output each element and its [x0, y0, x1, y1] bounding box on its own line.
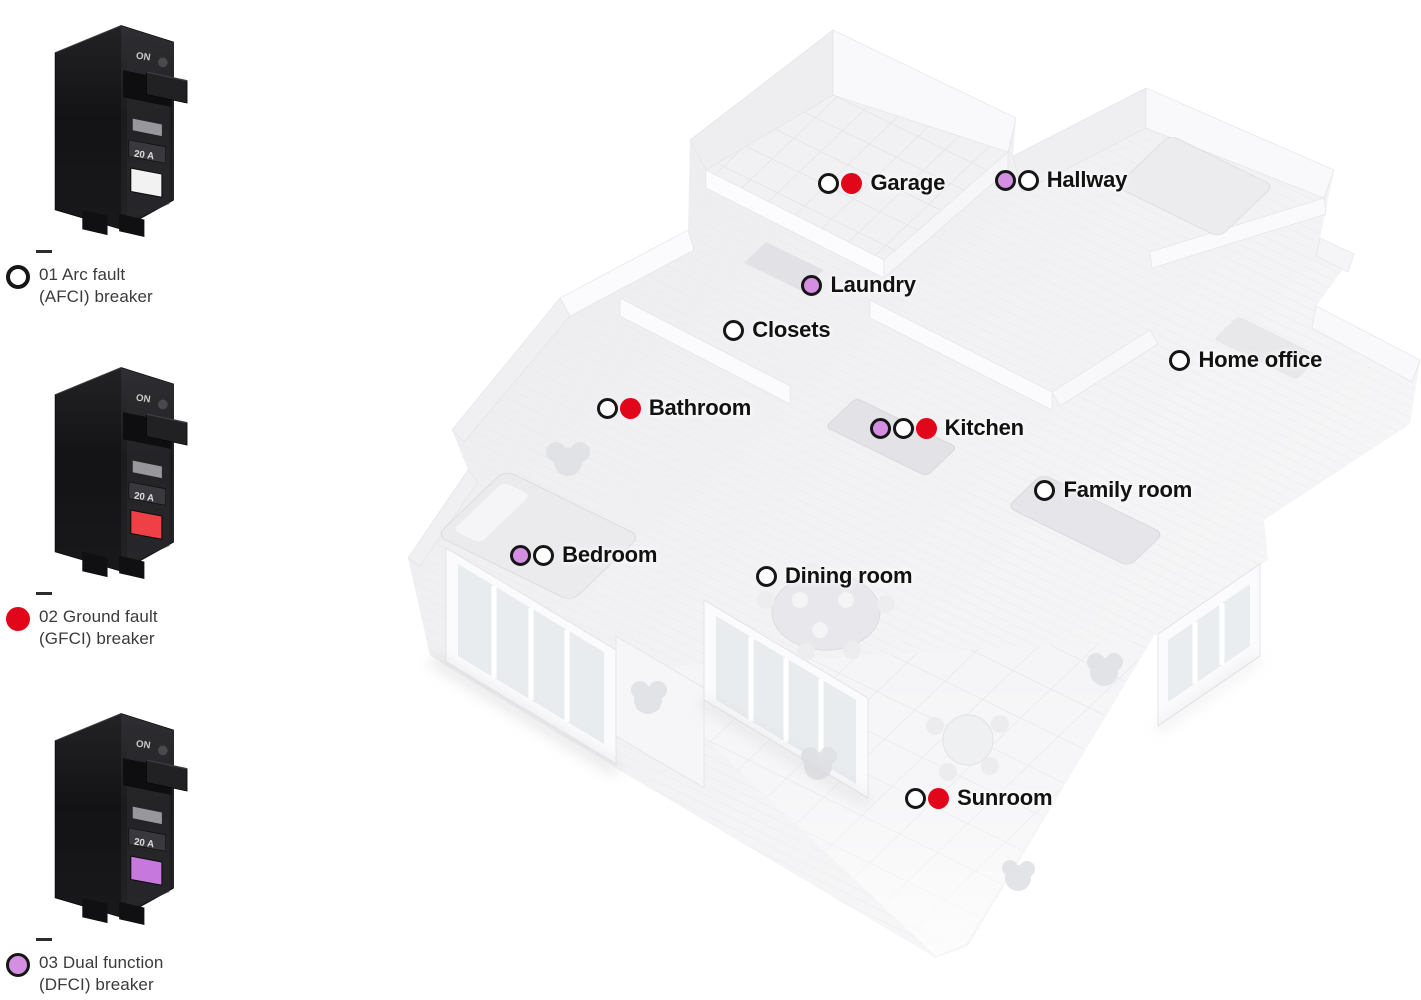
dfci-dot: [870, 418, 891, 439]
afci-dot: [1169, 350, 1190, 371]
breaker-on-text: ON: [135, 739, 151, 752]
room-label: Sunroom: [957, 785, 1052, 811]
dfci-dot: [510, 545, 531, 566]
legend-dot-dfci: [6, 953, 30, 977]
gfci-dot: [916, 418, 937, 439]
room-marker-family-room: Family room: [1034, 477, 1192, 503]
afci-dot: [756, 566, 777, 587]
room-marker-closets: Closets: [723, 317, 830, 343]
legend-block-dfci: ON 20 A 03 Dual function(DFCI) breaker: [6, 698, 226, 995]
afci-dot: [723, 320, 744, 341]
legend-column: ON 20 A 01 Arc fault(AFCI) breaker ON 20…: [0, 0, 230, 1000]
breaker-photo-afci: ON 20 A: [26, 10, 191, 238]
dfci-dot: [995, 170, 1016, 191]
legend-label-dfci: 03 Dual function(DFCI) breaker: [39, 952, 163, 995]
room-marker-laundry: Laundry: [801, 272, 915, 298]
legend-dash: [36, 938, 52, 941]
legend-block-gfci: ON 20 A 02 Ground fault(GFCI) breaker: [6, 352, 226, 649]
legend-dash: [36, 250, 52, 253]
room-marker-bathroom: Bathroom: [597, 395, 751, 421]
gfci-dot: [928, 788, 949, 809]
afci-dot: [893, 418, 914, 439]
room-label: Kitchen: [945, 415, 1024, 441]
legend-dot-afci: [6, 265, 30, 289]
afci-dot: [597, 398, 618, 419]
room-label: Hallway: [1047, 167, 1128, 193]
room-marker-dining-room: Dining room: [756, 563, 912, 589]
afci-dot: [1034, 480, 1055, 501]
gfci-dot: [620, 398, 641, 419]
room-label: Home office: [1198, 347, 1322, 373]
room-marker-bedroom: Bedroom: [510, 542, 657, 568]
afci-dot: [905, 788, 926, 809]
room-marker-sunroom: Sunroom: [905, 785, 1052, 811]
afci-dot: [533, 545, 554, 566]
legend-label-gfci: 02 Ground fault(GFCI) breaker: [39, 606, 158, 649]
room-marker-kitchen: Kitchen: [870, 415, 1024, 441]
legend-block-afci: ON 20 A 01 Arc fault(AFCI) breaker: [6, 10, 226, 307]
room-marker-hallway: Hallway: [995, 167, 1128, 193]
breaker-photo-dfci: ON 20 A: [26, 698, 191, 926]
room-marker-home-office: Home office: [1169, 347, 1322, 373]
room-label: Closets: [752, 317, 830, 343]
legend-dot-gfci: [6, 607, 30, 631]
breaker-on-text: ON: [135, 51, 151, 64]
afci-dot: [1018, 170, 1039, 191]
gfci-dot: [841, 173, 862, 194]
breaker-on-text: ON: [135, 393, 151, 406]
room-label: Garage: [870, 170, 945, 196]
legend-dash: [36, 592, 52, 595]
room-label: Dining room: [785, 563, 912, 589]
legend-label-afci: 01 Arc fault(AFCI) breaker: [39, 264, 153, 307]
room-label: Laundry: [830, 272, 915, 298]
infographic-canvas: GarageHallwayLaundryClosetsHome officeBa…: [0, 0, 1421, 1000]
dfci-dot: [801, 275, 822, 296]
room-marker-garage: Garage: [818, 170, 945, 196]
breaker-photo-gfci: ON 20 A: [26, 352, 191, 580]
room-label: Bathroom: [649, 395, 751, 421]
afci-dot: [818, 173, 839, 194]
room-label: Bedroom: [562, 542, 657, 568]
room-label: Family room: [1063, 477, 1192, 503]
